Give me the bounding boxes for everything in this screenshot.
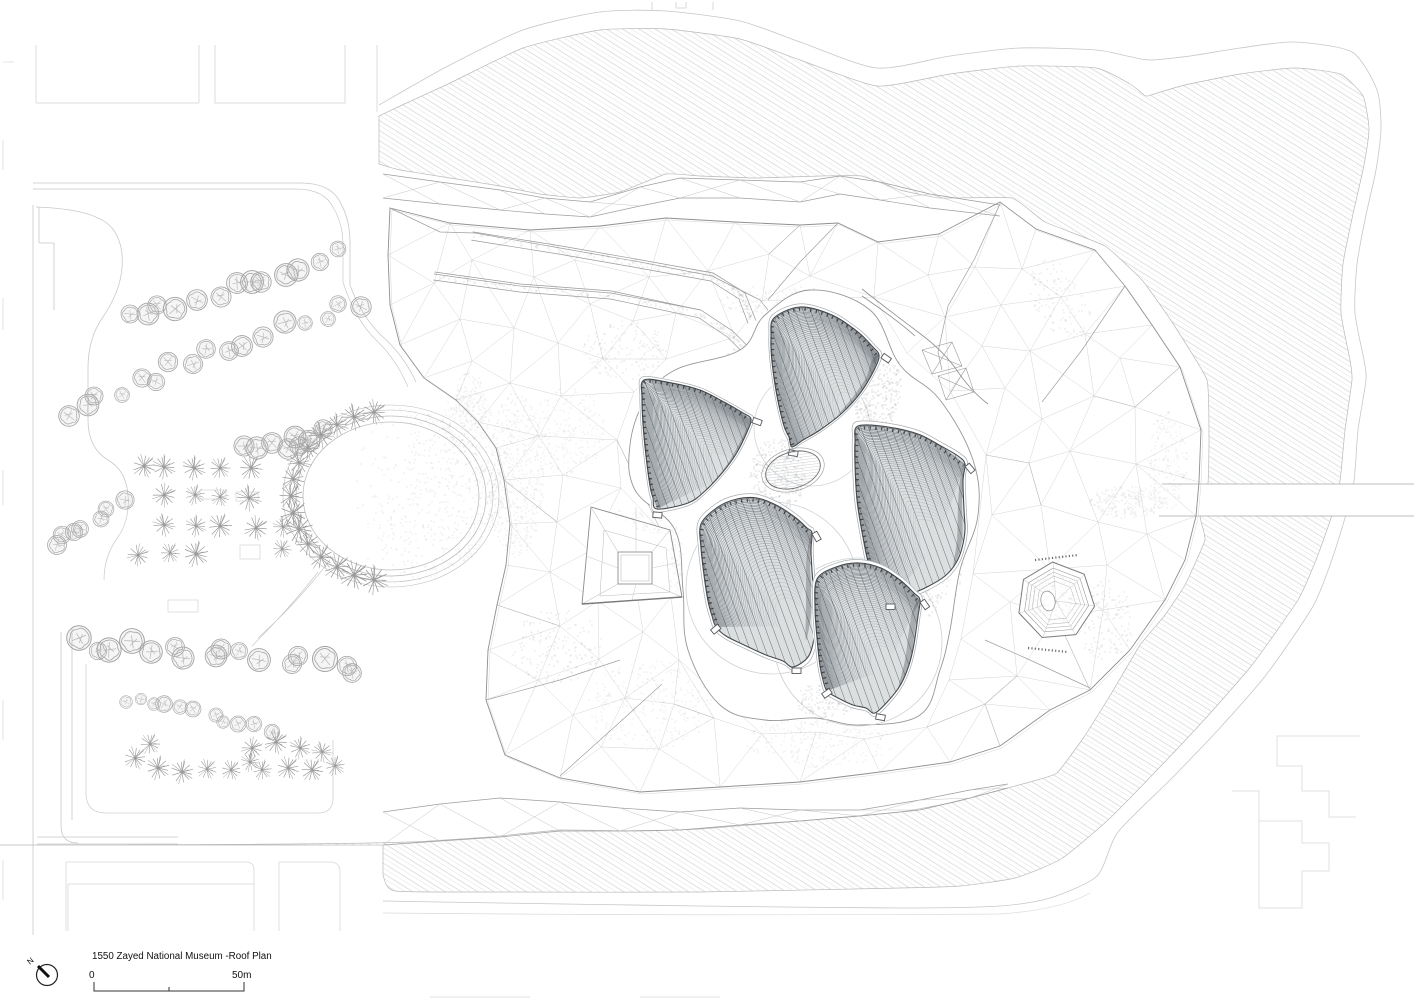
svg-text:1550 Zayed National Museum -Ro: 1550 Zayed National Museum -Roof Plan bbox=[92, 951, 272, 962]
svg-text:50m: 50m bbox=[232, 970, 251, 981]
svg-text:0: 0 bbox=[89, 970, 95, 981]
